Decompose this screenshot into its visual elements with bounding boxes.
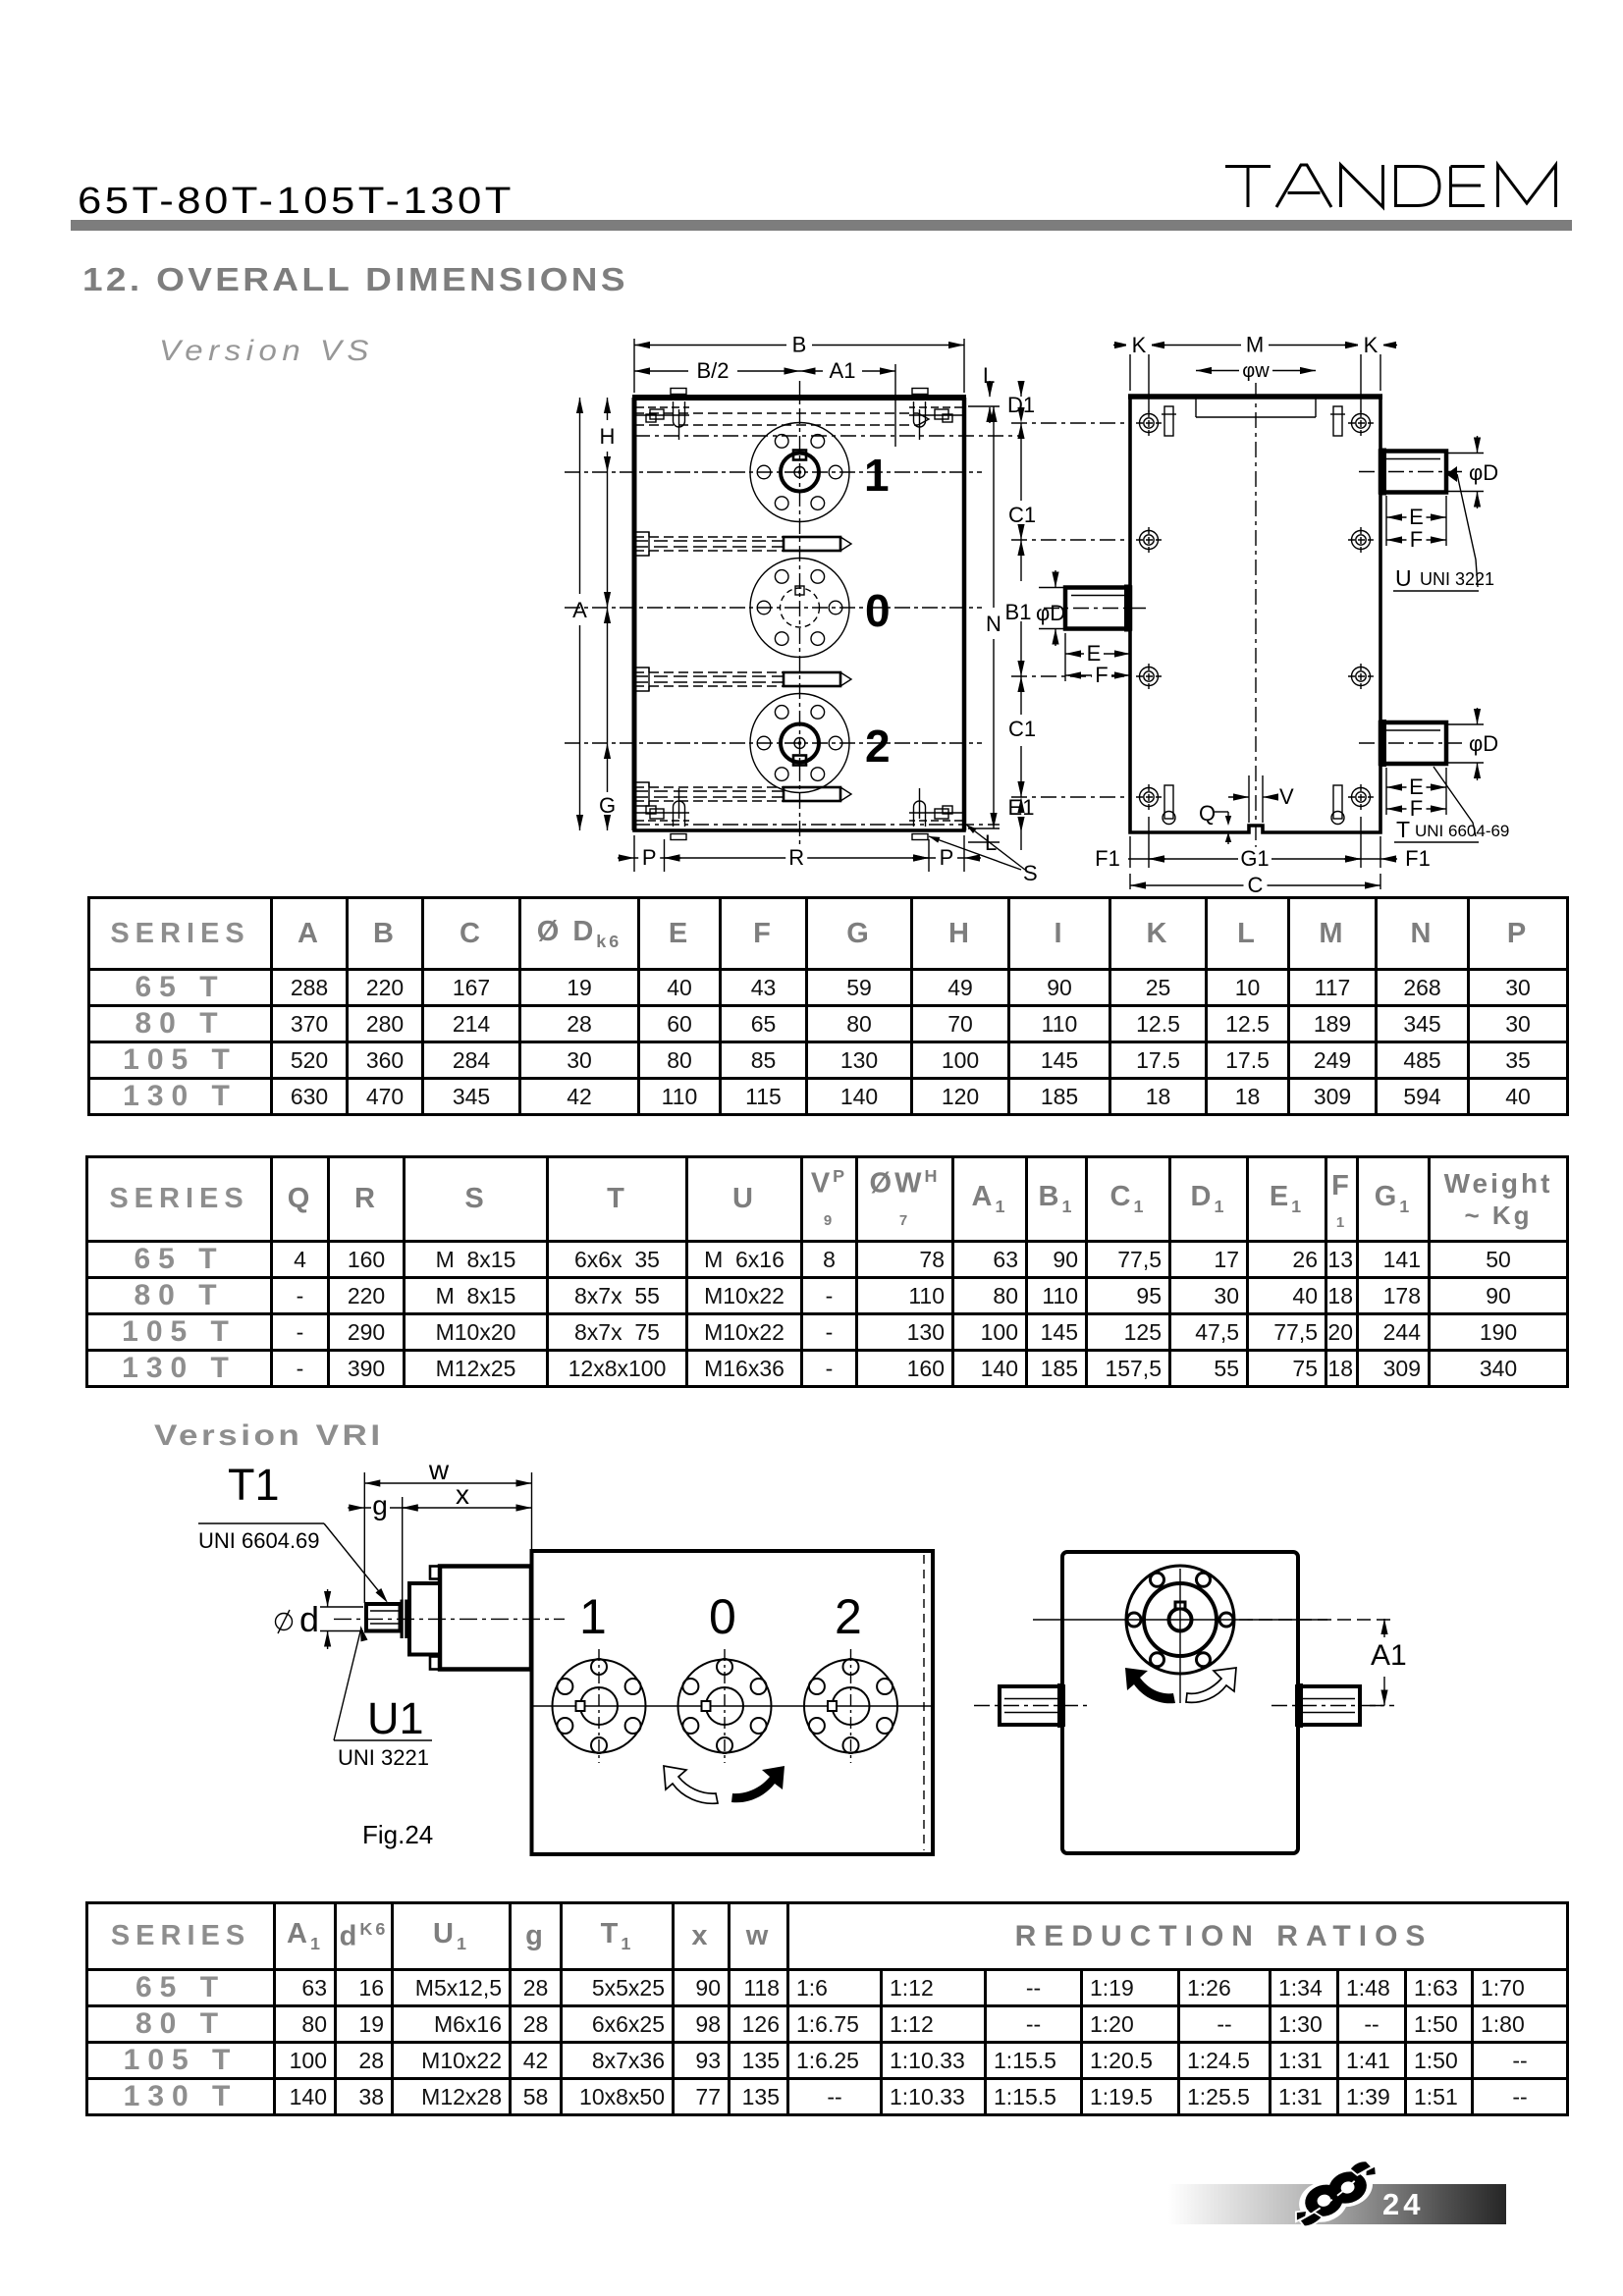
svg-text:S: S (1023, 861, 1038, 885)
svg-text:g: g (372, 1490, 388, 1521)
svg-text:UNI 6604.69: UNI 6604.69 (198, 1528, 320, 1553)
svg-text:T: T (1396, 817, 1410, 842)
svg-text:B/2: B/2 (696, 358, 729, 383)
svg-text:B: B (792, 333, 807, 357)
svg-text:UNI 3221: UNI 3221 (338, 1745, 429, 1770)
svg-text:x: x (456, 1479, 469, 1510)
svg-text:A: A (572, 598, 587, 622)
svg-text:UNI 6604-69: UNI 6604-69 (1415, 822, 1509, 840)
svg-text:F: F (1410, 796, 1423, 821)
svg-text:T1: T1 (228, 1460, 280, 1510)
svg-text:Q: Q (1199, 801, 1216, 826)
svg-text:G1: G1 (1240, 846, 1269, 871)
svg-text:0: 0 (865, 585, 891, 636)
svg-text:P: P (642, 845, 657, 870)
svg-text:F1: F1 (1405, 846, 1431, 871)
svg-text:C1: C1 (1008, 503, 1036, 527)
svg-text:M: M (1246, 333, 1264, 357)
svg-text:w: w (428, 1455, 450, 1485)
svg-text:L: L (985, 830, 997, 855)
svg-text:0: 0 (709, 1589, 736, 1644)
svg-text:d: d (299, 1599, 319, 1639)
svg-text:UNI 3221: UNI 3221 (1420, 569, 1494, 589)
svg-text:F: F (1095, 663, 1108, 687)
svg-text:G: G (599, 793, 616, 818)
svg-text:φD: φD (1036, 601, 1065, 625)
svg-text:φw: φw (1242, 360, 1270, 382)
svg-text:K: K (1364, 333, 1379, 357)
svg-text:V: V (1279, 784, 1294, 809)
svg-text:A1: A1 (830, 358, 856, 383)
svg-text:C: C (1248, 873, 1264, 897)
svg-text:R: R (788, 845, 804, 870)
svg-text:H: H (600, 424, 616, 449)
svg-text:K: K (1132, 333, 1147, 357)
svg-text:2: 2 (865, 721, 891, 772)
svg-text:Fig.24: Fig.24 (362, 1820, 433, 1849)
svg-text:U: U (1395, 565, 1412, 591)
svg-text:E: E (1409, 505, 1424, 529)
svg-text:E1: E1 (1008, 795, 1035, 820)
svg-text:1: 1 (864, 450, 890, 501)
svg-text:φD: φD (1469, 460, 1498, 485)
svg-text:U1: U1 (367, 1693, 424, 1743)
svg-text:N: N (986, 612, 1001, 636)
svg-text:F1: F1 (1095, 846, 1120, 871)
svg-text:2: 2 (835, 1589, 862, 1644)
svg-text:C1: C1 (1008, 717, 1036, 741)
svg-text:A1: A1 (1371, 1639, 1407, 1672)
svg-text:1: 1 (579, 1589, 607, 1644)
svg-text:P: P (940, 845, 954, 870)
svg-text:φD: φD (1469, 731, 1498, 756)
svg-text:B1: B1 (1005, 600, 1032, 624)
svg-text:F: F (1410, 527, 1423, 552)
